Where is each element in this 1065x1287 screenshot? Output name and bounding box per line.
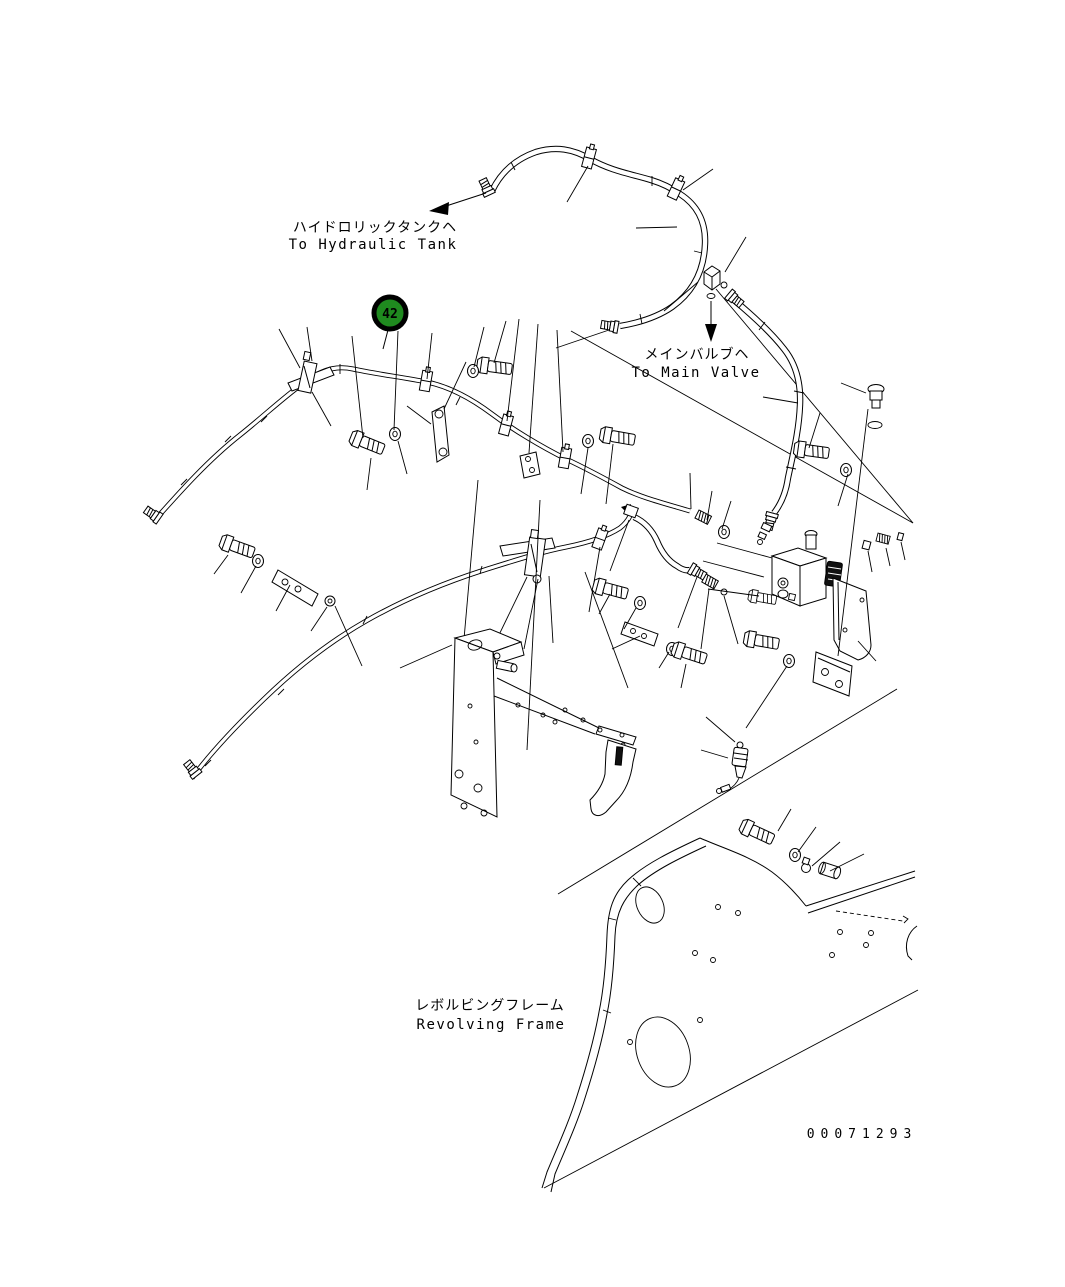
washer xyxy=(784,655,795,668)
plug xyxy=(862,540,871,550)
bolt xyxy=(599,426,636,448)
arrow-to-main-valve xyxy=(705,301,717,342)
tube-clamp xyxy=(499,410,515,436)
label-hydraulic-tank-en: To Hydraulic Tank xyxy=(289,237,458,253)
threaded-adapter xyxy=(876,533,890,544)
hose-end-fitting xyxy=(600,318,619,333)
label-main-valve-jp: メインバルブヘ xyxy=(645,346,750,363)
parts-diagram-sheet: ハイドロリックタンクヘ To Hydraulic Tank 42 xyxy=(0,0,1065,1287)
washer xyxy=(719,526,730,539)
plug xyxy=(897,533,904,541)
washer xyxy=(841,464,852,477)
label-hydraulic-tank: ハイドロリックタンクヘ To Hydraulic Tank xyxy=(289,220,458,253)
tube-clamp xyxy=(419,366,433,391)
label-main-valve: メインバルブヘ To Main Valve xyxy=(631,346,760,381)
hose-to-main-valve xyxy=(725,289,804,544)
link-plate xyxy=(407,362,466,462)
hose-to-hydraulic-tank xyxy=(477,143,713,333)
washer xyxy=(468,365,479,378)
hook-bracket xyxy=(590,740,636,816)
bolt xyxy=(793,440,830,461)
tube-clamp-group-lower xyxy=(500,530,555,583)
hydraulic-piping-diagram: ハイドロリックタンクヘ To Hydraulic Tank 42 xyxy=(0,0,1065,1287)
bolt xyxy=(743,630,780,652)
pressure-switch xyxy=(701,666,787,794)
label-revolving-frame-en: Revolving Frame xyxy=(417,1017,566,1033)
callout-42[interactable]: 42 xyxy=(374,297,406,349)
mounting-bracket xyxy=(451,629,524,817)
bolt xyxy=(348,429,386,457)
tube-end-fitting xyxy=(142,504,163,524)
label-revolving-frame-jp: レボルビングフレーム xyxy=(415,998,565,1014)
spacer-bushing xyxy=(817,861,842,879)
drawing-number: 00071293 xyxy=(807,1127,918,1142)
bolt xyxy=(476,356,513,377)
tube-end-fitting xyxy=(182,758,202,779)
threaded-adapter xyxy=(695,510,712,524)
callout-42-number: 42 xyxy=(382,307,398,322)
pipe-clip xyxy=(802,864,811,873)
frame-fasteners xyxy=(738,809,864,880)
arrow-to-hydraulic-tank xyxy=(429,193,486,215)
washer xyxy=(390,428,401,441)
valve-block xyxy=(747,531,842,607)
clamp-bolt-cluster-left xyxy=(214,533,362,666)
label-main-valve-en: To Main Valve xyxy=(631,365,760,381)
frame-hole-marks xyxy=(628,905,874,1045)
support-beam xyxy=(494,678,636,816)
label-hydraulic-tank-jp: ハイドロリックタンクヘ xyxy=(293,220,457,236)
washer xyxy=(583,435,594,448)
valve-leaders-and-plug xyxy=(703,383,905,656)
label-revolving-frame: レボルビングフレーム Revolving Frame xyxy=(415,998,565,1033)
